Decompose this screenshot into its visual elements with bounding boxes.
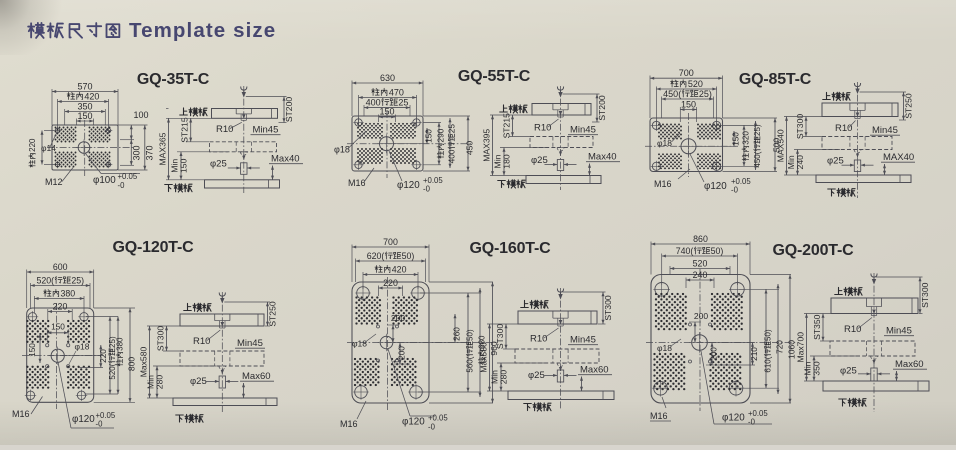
svg-text:ST215: ST215	[180, 117, 190, 143]
svg-text:ST300: ST300	[155, 326, 165, 352]
svg-text:GQ-55T-C: GQ-55T-C	[458, 68, 531, 85]
svg-text:GQ-35T-C: GQ-35T-C	[137, 71, 210, 88]
svg-text:290: 290	[436, 128, 446, 142]
svg-text:150: 150	[77, 111, 92, 121]
svg-text:φ25: φ25	[210, 159, 227, 170]
svg-text:MAX395: MAX395	[481, 129, 491, 162]
svg-text:560(: 560(	[466, 356, 475, 372]
svg-text:Min45: Min45	[237, 338, 263, 349]
svg-text:720: 720	[775, 340, 785, 354]
svg-text:Max700: Max700	[795, 332, 805, 363]
svg-text:200: 200	[694, 311, 708, 321]
svg-text:φ18: φ18	[75, 342, 90, 352]
svg-text:610(: 610(	[764, 356, 773, 372]
svg-text:220: 220	[98, 349, 108, 363]
svg-text:220: 220	[53, 301, 68, 311]
svg-text:Max60: Max60	[580, 365, 609, 376]
svg-text:R10: R10	[844, 324, 861, 335]
svg-text:Min45: Min45	[872, 125, 898, 136]
svg-text:ST300: ST300	[795, 114, 805, 140]
svg-text:GQ-120T-C: GQ-120T-C	[113, 239, 195, 256]
svg-text:φ120: φ120	[704, 181, 727, 192]
svg-text:-0: -0	[96, 420, 104, 429]
svg-text:MAX365: MAX365	[157, 132, 167, 165]
svg-text:520: 520	[693, 258, 708, 268]
svg-text:Min45: Min45	[570, 335, 596, 346]
svg-text:25: 25	[447, 124, 457, 134]
svg-text:-0: -0	[428, 423, 436, 432]
svg-text:420: 420	[84, 91, 99, 101]
svg-text:50): 50)	[764, 329, 773, 341]
svg-text:570: 570	[77, 81, 92, 91]
svg-text:R10: R10	[835, 123, 852, 134]
svg-text:Min45: Min45	[253, 125, 279, 136]
svg-text:860: 860	[693, 234, 708, 244]
svg-text:φ25: φ25	[528, 370, 545, 381]
svg-text:R10: R10	[193, 336, 210, 347]
svg-text:ST215: ST215	[501, 113, 511, 139]
svg-text:220: 220	[28, 138, 37, 152]
svg-text:150: 150	[27, 343, 37, 357]
svg-text:50): 50)	[402, 251, 415, 261]
svg-text:450: 450	[465, 141, 475, 156]
svg-text:150: 150	[424, 129, 434, 143]
svg-text:100: 100	[134, 110, 149, 120]
svg-text:450(: 450(	[663, 89, 681, 99]
svg-text:620(: 620(	[367, 251, 385, 261]
svg-text:220: 220	[383, 278, 398, 288]
svg-text:φ120: φ120	[722, 413, 745, 424]
svg-text:240: 240	[693, 270, 708, 280]
svg-text:260: 260	[452, 327, 462, 341]
svg-text:280: 280	[499, 370, 509, 385]
svg-text:300: 300	[132, 145, 142, 160]
svg-text:520(: 520(	[108, 363, 117, 379]
svg-text:150: 150	[51, 322, 65, 332]
svg-text:350: 350	[77, 101, 92, 111]
svg-text:Template size: Template size	[129, 19, 276, 42]
svg-text:470: 470	[389, 87, 404, 97]
svg-text:φ25: φ25	[827, 156, 844, 167]
svg-text:MAX540: MAX540	[775, 129, 785, 162]
svg-text:ST300: ST300	[603, 295, 613, 321]
svg-text:-0: -0	[748, 418, 756, 427]
svg-text:GQ-160T-C: GQ-160T-C	[470, 240, 552, 257]
svg-text:+0.05: +0.05	[428, 414, 448, 423]
svg-text:370: 370	[145, 145, 155, 160]
svg-text:R10: R10	[534, 123, 551, 134]
svg-text:-0: -0	[118, 181, 126, 190]
svg-text:φ120: φ120	[397, 180, 420, 191]
svg-text:740(: 740(	[676, 246, 694, 256]
svg-text:φ120: φ120	[72, 414, 95, 425]
svg-text:700: 700	[679, 68, 694, 78]
svg-text:M16: M16	[12, 409, 30, 419]
svg-text:Max580: Max580	[478, 342, 488, 373]
svg-text:630: 630	[380, 73, 395, 83]
svg-text:-0: -0	[731, 186, 739, 195]
svg-text:φ100: φ100	[93, 175, 116, 186]
svg-text:φ25: φ25	[840, 366, 857, 377]
svg-text:200: 200	[709, 347, 719, 361]
svg-text:Max580: Max580	[138, 347, 148, 378]
svg-text:240: 240	[795, 155, 805, 170]
svg-text:M16: M16	[650, 411, 668, 421]
svg-text:380: 380	[116, 337, 125, 351]
svg-text:150: 150	[379, 107, 394, 117]
svg-text:ST250: ST250	[268, 301, 278, 327]
svg-text:150: 150	[681, 99, 696, 109]
svg-text:φ25: φ25	[531, 155, 548, 166]
svg-text:150: 150	[179, 158, 189, 173]
svg-text:25): 25)	[71, 275, 84, 285]
svg-text:50): 50)	[466, 329, 475, 341]
svg-text:ST250: ST250	[904, 93, 914, 119]
svg-text:450(: 450(	[753, 151, 762, 167]
svg-text:φ14: φ14	[41, 143, 56, 153]
svg-text:600: 600	[53, 262, 68, 272]
svg-text:700: 700	[383, 237, 398, 247]
svg-text:M12: M12	[45, 177, 63, 187]
svg-text:350: 350	[812, 361, 822, 376]
svg-text:ST350: ST350	[812, 314, 822, 340]
svg-text:M16: M16	[348, 178, 366, 188]
svg-text:ST300: ST300	[920, 282, 930, 308]
svg-text:Max60: Max60	[242, 371, 271, 382]
svg-text:M16: M16	[654, 179, 672, 189]
svg-text:800: 800	[127, 357, 137, 372]
svg-text:φ18: φ18	[352, 339, 367, 349]
svg-text:25): 25)	[753, 124, 762, 136]
svg-text:ST200: ST200	[284, 97, 294, 123]
svg-text:φ18: φ18	[657, 138, 672, 148]
svg-text:φ120: φ120	[402, 417, 425, 428]
svg-text:180: 180	[502, 154, 512, 169]
svg-text:MAX40: MAX40	[883, 152, 914, 163]
svg-text:210: 210	[749, 347, 759, 361]
svg-text:Max60: Max60	[895, 359, 924, 370]
svg-text:+0.05: +0.05	[118, 172, 138, 181]
svg-text:GQ-85T-C: GQ-85T-C	[739, 71, 812, 88]
svg-text:520: 520	[688, 79, 703, 89]
svg-text:ST200: ST200	[597, 95, 607, 121]
svg-text:50): 50)	[711, 246, 724, 256]
svg-text:Min45: Min45	[570, 125, 596, 136]
svg-text:Min45: Min45	[886, 326, 912, 337]
svg-text:380: 380	[60, 288, 75, 298]
svg-text:150: 150	[731, 132, 741, 146]
svg-text:25): 25)	[699, 89, 712, 99]
svg-text:200: 200	[397, 346, 407, 360]
svg-text:ST300: ST300	[495, 324, 505, 350]
svg-text:Max40: Max40	[271, 154, 300, 165]
svg-text:-0: -0	[423, 185, 431, 194]
svg-text:R10: R10	[530, 334, 547, 345]
svg-text:φ25: φ25	[190, 376, 207, 387]
svg-text:400: 400	[447, 149, 457, 163]
svg-text:420: 420	[392, 264, 407, 274]
svg-text:200: 200	[391, 313, 405, 323]
svg-text:520(: 520(	[36, 275, 54, 285]
svg-text:320: 320	[741, 131, 751, 145]
svg-text:φ18: φ18	[334, 145, 350, 155]
svg-text:R10: R10	[216, 124, 233, 135]
svg-text:M16: M16	[340, 419, 358, 429]
svg-text:Max40: Max40	[588, 152, 617, 163]
svg-text:GQ-200T-C: GQ-200T-C	[773, 242, 855, 259]
svg-text:280: 280	[155, 375, 165, 390]
svg-text:25: 25	[398, 97, 408, 107]
svg-text:400: 400	[366, 97, 381, 107]
svg-text:φ18: φ18	[657, 343, 672, 353]
